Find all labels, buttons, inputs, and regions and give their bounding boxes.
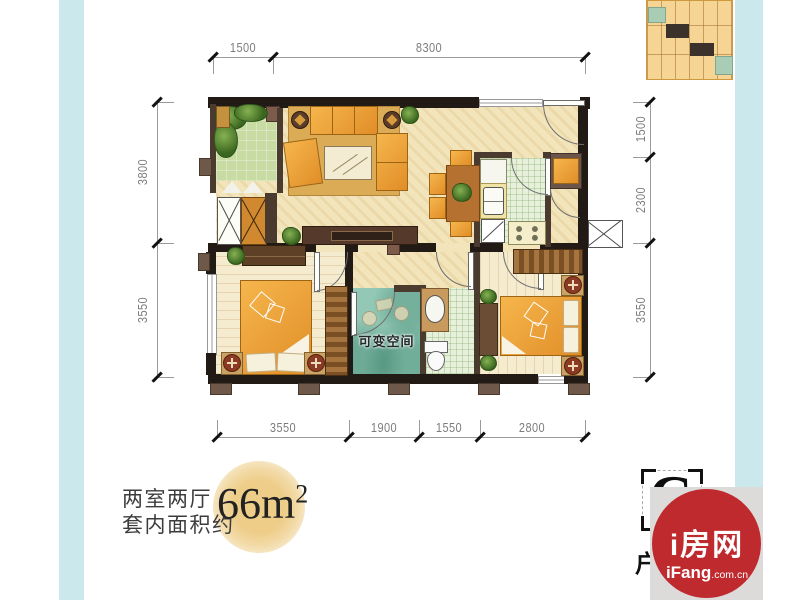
ac-cross-line [589, 222, 622, 248]
bedroom2-plant [480, 289, 497, 304]
right-accent-bar [735, 0, 763, 487]
pilaster [298, 383, 320, 395]
area-superscript: 2 [295, 479, 308, 508]
bedroom2-bed [500, 296, 582, 356]
bedside-lamp [307, 354, 325, 372]
plant-by-tv [282, 227, 301, 245]
pilaster [478, 383, 500, 395]
bedroom2-wardrobe [513, 249, 583, 274]
glass-reflection [343, 157, 368, 175]
bed-pillow [246, 352, 277, 373]
flexible-space-label: 可变空间 [351, 331, 422, 350]
sofa-two-seat [376, 133, 408, 191]
kitchen-counter-top [480, 159, 507, 185]
fridge [553, 158, 579, 184]
garden-foliage [234, 104, 268, 122]
minimap-core-2 [690, 43, 714, 56]
garden-flowerbox [216, 106, 230, 128]
dining-chair [450, 221, 472, 237]
floorplan-page: 可变空间 1500 8300 3550 1900 1550 2800 [0, 0, 800, 600]
dim-label: 3550 [136, 284, 150, 337]
dim-label: 2800 [506, 421, 559, 435]
dim-line-bottom [217, 437, 585, 438]
window-bedroom1 [207, 274, 217, 355]
dim-label: 1550 [423, 421, 476, 435]
bedroom2-dresser [479, 303, 498, 356]
blanket-pattern [530, 322, 548, 340]
side-table-star [294, 114, 305, 125]
wall-bedroom1-left-b [206, 353, 216, 375]
side-table-round [383, 111, 401, 129]
pilaster [568, 383, 590, 395]
plant-by-sofa [401, 106, 419, 124]
logo-en-text: iFang.com.cn [657, 563, 757, 583]
window-bedroom2-bottom [538, 376, 567, 384]
sofa-three-seat [310, 106, 378, 135]
left-accent-bar [59, 0, 84, 600]
bedroom1-plant [227, 247, 245, 265]
closet-cabinet-orange [241, 197, 267, 245]
bedroom1-dresser [242, 245, 306, 266]
kitchen-sink [483, 187, 504, 215]
pilaster [210, 383, 232, 395]
bed-pillow [563, 327, 579, 353]
bedside-lamp [223, 354, 241, 372]
dining-centerpiece-plant [452, 183, 472, 202]
pilaster [388, 383, 410, 395]
pilaster [199, 158, 212, 176]
ac-platform [588, 220, 623, 248]
dim-witness [213, 57, 214, 74]
logo-en-suffix: .com.cn [711, 569, 748, 581]
dim-label: 2300 [634, 174, 648, 227]
minimap-court-topleft [648, 7, 666, 23]
ac-cross-line [589, 220, 622, 246]
opening-bathroom [436, 243, 470, 252]
wall-flex-top [394, 285, 420, 292]
side-table-star [386, 114, 397, 125]
bedside-lamp [564, 357, 582, 375]
armchair [283, 138, 323, 188]
cabinet-cross-line [241, 199, 267, 244]
stove [508, 221, 546, 245]
minimap-court-bottomright [715, 56, 733, 75]
flex-sketch-chair [394, 306, 409, 321]
wall-closet-right [265, 193, 277, 243]
dim-witness [585, 57, 586, 74]
dim-label: 3550 [634, 284, 648, 337]
dim-label: 1500 [217, 41, 270, 55]
cabinet-cross-line [218, 200, 241, 243]
area-value: 66m2 [217, 478, 308, 529]
bedroom1-wardrobe [325, 286, 348, 376]
tv-unit [331, 231, 393, 241]
dim-witness [157, 243, 174, 244]
logo-cn-text: i房网 [657, 520, 757, 564]
wall-garden-living [277, 108, 283, 193]
dim-witness [157, 102, 174, 103]
coffee-table [324, 146, 372, 180]
dim-label: 8300 [403, 41, 456, 55]
glass-reflection [333, 154, 358, 172]
minimap-core-1 [666, 24, 689, 38]
bed-pillow [277, 352, 308, 373]
dining-chair [429, 197, 446, 219]
blanket-fold [502, 336, 526, 354]
bed-pillow [563, 300, 579, 326]
bedside-lamp [564, 276, 582, 294]
closet-cabinet-white [217, 197, 241, 245]
dim-witness [273, 57, 274, 74]
dim-label: 1500 [634, 103, 648, 156]
dining-chair [429, 173, 446, 195]
dim-label: 1900 [358, 421, 411, 435]
blanket-pattern [265, 303, 285, 323]
dim-label: 3550 [257, 421, 310, 435]
building-plate-thumbnail [646, 0, 733, 80]
dim-label: 3800 [136, 146, 150, 199]
bathroom-basin [425, 295, 445, 323]
watermark-logo: i房网 iFang.com.cn [650, 487, 763, 600]
side-table-round [291, 111, 309, 129]
logo-en-bold: iFang [666, 563, 711, 582]
tv-cabinet [302, 226, 418, 245]
window-top [479, 99, 543, 107]
dining-chair [450, 150, 472, 166]
dim-witness [157, 377, 174, 378]
washing-machine [481, 219, 505, 243]
pilaster [198, 253, 210, 271]
area-number: 66m [217, 479, 295, 528]
washer-diagonal [483, 221, 504, 241]
wall-kitchen-top-a [474, 152, 512, 158]
bedroom2-plant [480, 355, 497, 371]
bedroom1-bed [240, 280, 312, 375]
